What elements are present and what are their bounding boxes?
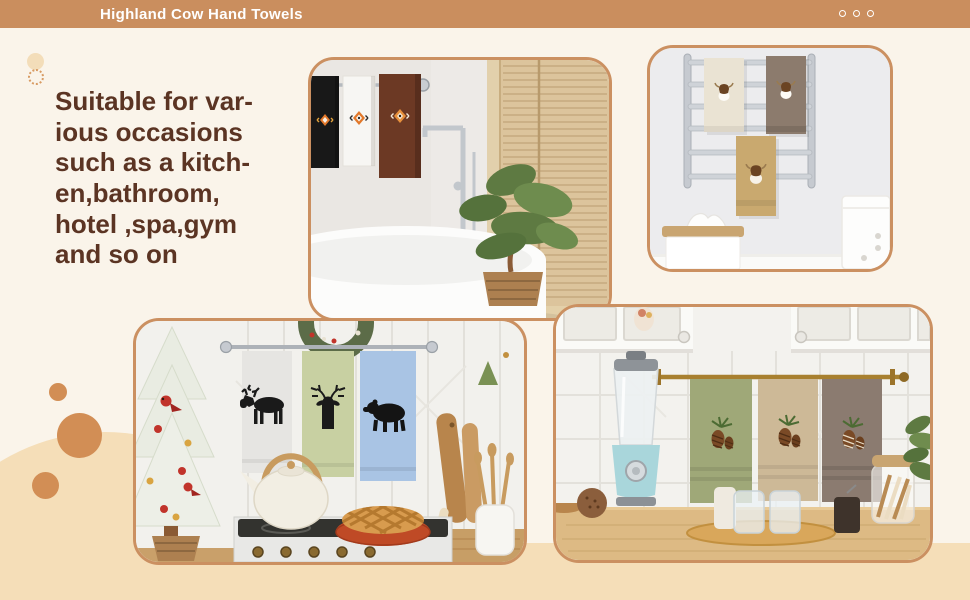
product-page: Suitable for var- ious occasions such as… xyxy=(0,0,970,600)
header-bar: Highland Cow Hand Towels xyxy=(0,0,970,28)
photo-panel-modern-kitchen xyxy=(553,304,933,563)
carousel-dot xyxy=(839,10,846,17)
blender xyxy=(612,351,660,506)
carousel-dot xyxy=(867,10,874,17)
accent-circle-medium xyxy=(32,472,59,499)
deco-circle-filled xyxy=(27,53,44,70)
deco-circle-dotted xyxy=(28,69,44,85)
modern-kitchen-scene xyxy=(556,307,930,560)
photo-panel-bathroom xyxy=(308,57,612,321)
christmas-kitchen-scene xyxy=(136,321,524,562)
accent-circle-large xyxy=(57,413,102,458)
towel-rack-scene xyxy=(650,48,890,269)
photo-panel-christmas-kitchen xyxy=(133,318,527,565)
accent-circle-small xyxy=(49,383,67,401)
header-dots xyxy=(839,10,874,17)
photo-panel-towel-rack xyxy=(647,45,893,272)
page-title: Highland Cow Hand Towels xyxy=(0,6,303,23)
hand-towels xyxy=(311,74,421,178)
carousel-dot xyxy=(853,10,860,17)
washing-machine xyxy=(842,196,890,269)
straw-jar xyxy=(872,455,914,523)
bathroom-scene xyxy=(311,60,609,318)
intro-text: Suitable for var- ious occasions such as… xyxy=(55,86,317,270)
